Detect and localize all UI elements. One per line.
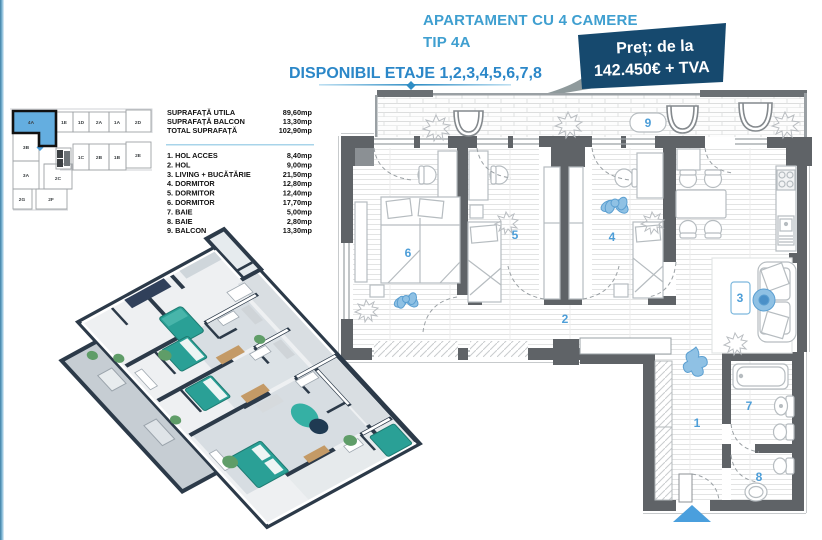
- svg-text:2F: 2F: [48, 197, 54, 203]
- svg-text:8. BAIE: 8. BAIE: [167, 217, 193, 226]
- svg-text:1D: 1D: [78, 120, 85, 126]
- svg-text:5. DORMITOR: 5. DORMITOR: [167, 189, 215, 198]
- svg-text:DISPONIBIL ETAJE 1,2,3,4,5,6,7: DISPONIBIL ETAJE 1,2,3,4,5,6,7,8: [289, 65, 542, 82]
- svg-text:2D: 2D: [135, 120, 142, 126]
- svg-text:7. BAIE: 7. BAIE: [167, 207, 193, 216]
- svg-text:6. DORMITOR: 6. DORMITOR: [167, 198, 215, 207]
- svg-text:12,80mp: 12,80mp: [283, 179, 313, 188]
- svg-text:4: 4: [609, 230, 616, 244]
- svg-text:5,00mp: 5,00mp: [287, 207, 313, 216]
- svg-text:89,60mp: 89,60mp: [283, 108, 313, 117]
- svg-text:9,00mp: 9,00mp: [287, 160, 313, 169]
- svg-text:3. LIVING + BUCĂTĂRIE: 3. LIVING + BUCĂTĂRIE: [167, 170, 251, 179]
- svg-text:6: 6: [405, 246, 412, 260]
- svg-text:1. HOL ACCES: 1. HOL ACCES: [167, 151, 218, 160]
- svg-text:2B: 2B: [96, 155, 103, 161]
- svg-text:TOTAL SUPRAFAȚĂ: TOTAL SUPRAFAȚĂ: [167, 126, 238, 135]
- svg-text:7: 7: [746, 399, 753, 413]
- svg-text:9: 9: [645, 116, 652, 130]
- svg-text:SUPRAFAȚĂ BALCON: SUPRAFAȚĂ BALCON: [167, 117, 245, 126]
- svg-text:2: 2: [562, 312, 569, 326]
- svg-text:2,80mp: 2,80mp: [287, 217, 313, 226]
- svg-text:12,40mp: 12,40mp: [283, 189, 313, 198]
- svg-text:8,40mp: 8,40mp: [287, 151, 313, 160]
- svg-text:1E: 1E: [61, 120, 68, 126]
- svg-text:2A: 2A: [96, 120, 103, 126]
- svg-text:1: 1: [694, 416, 701, 430]
- svg-text:4. DORMITOR: 4. DORMITOR: [167, 179, 215, 188]
- svg-text:1B: 1B: [114, 155, 121, 161]
- svg-text:Preț: de la: Preț: de la: [616, 38, 694, 58]
- svg-text:1C: 1C: [78, 155, 85, 161]
- svg-text:1A: 1A: [114, 120, 121, 126]
- svg-text:2G: 2G: [19, 197, 26, 203]
- svg-text:3B: 3B: [23, 145, 30, 151]
- svg-text:21,50mp: 21,50mp: [283, 170, 313, 179]
- svg-text:102,90mp: 102,90mp: [279, 126, 313, 135]
- svg-text:2E: 2E: [135, 153, 142, 159]
- svg-text:4A: 4A: [28, 120, 35, 126]
- svg-text:3: 3: [737, 291, 744, 305]
- svg-text:SUPRAFAȚĂ UTILA: SUPRAFAȚĂ UTILA: [167, 108, 236, 117]
- svg-text:TIP 4A: TIP 4A: [423, 34, 471, 51]
- svg-text:5: 5: [512, 228, 519, 242]
- svg-text:2C: 2C: [55, 176, 62, 182]
- svg-text:8: 8: [756, 470, 763, 484]
- svg-text:13,30mp: 13,30mp: [283, 117, 313, 126]
- svg-text:17,70mp: 17,70mp: [283, 198, 313, 207]
- svg-text:2. HOL: 2. HOL: [167, 160, 191, 169]
- svg-text:13,30mp: 13,30mp: [283, 226, 313, 235]
- svg-text:3A: 3A: [23, 173, 30, 179]
- svg-text:9. BALCON: 9. BALCON: [167, 226, 206, 235]
- svg-text:APARTAMENT CU 4 CAMERE: APARTAMENT CU 4 CAMERE: [423, 12, 638, 29]
